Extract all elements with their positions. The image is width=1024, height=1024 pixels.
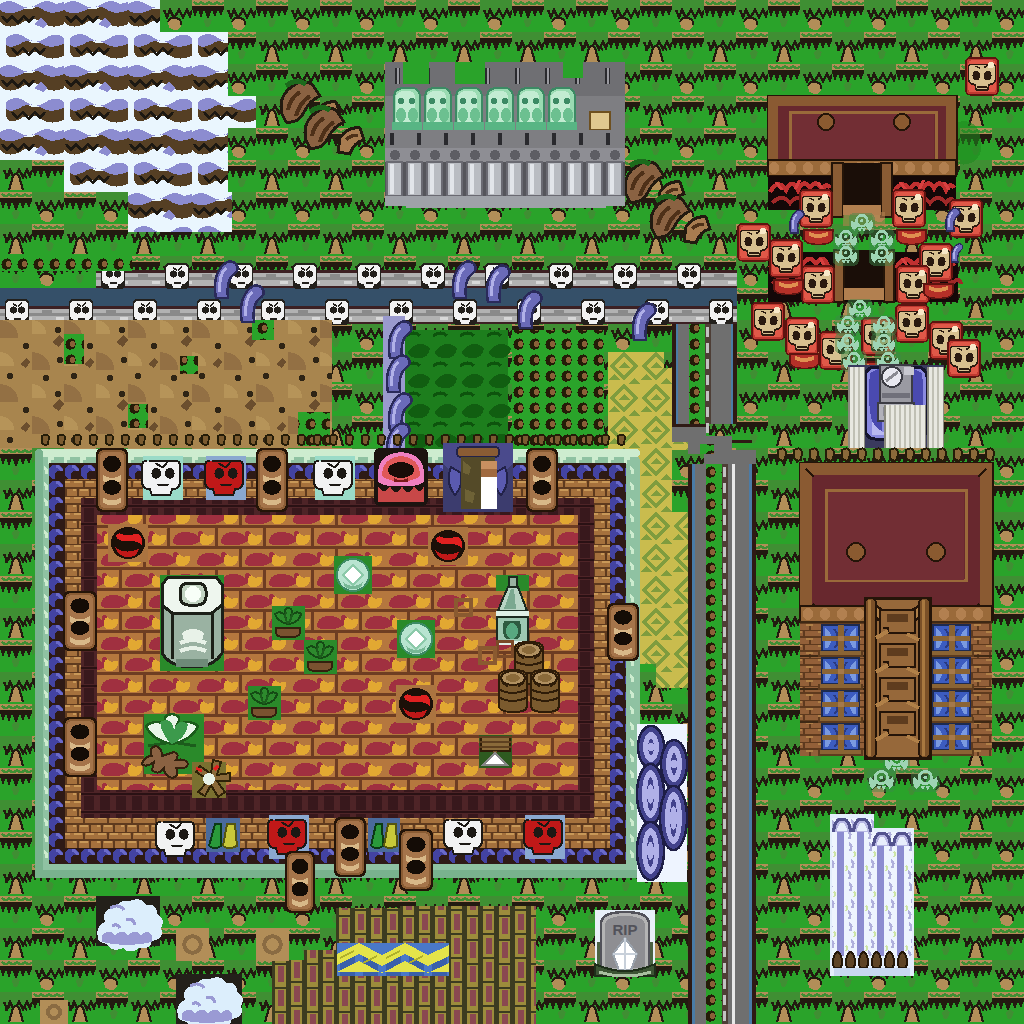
svg-text:RIP: RIP [612, 921, 637, 938]
